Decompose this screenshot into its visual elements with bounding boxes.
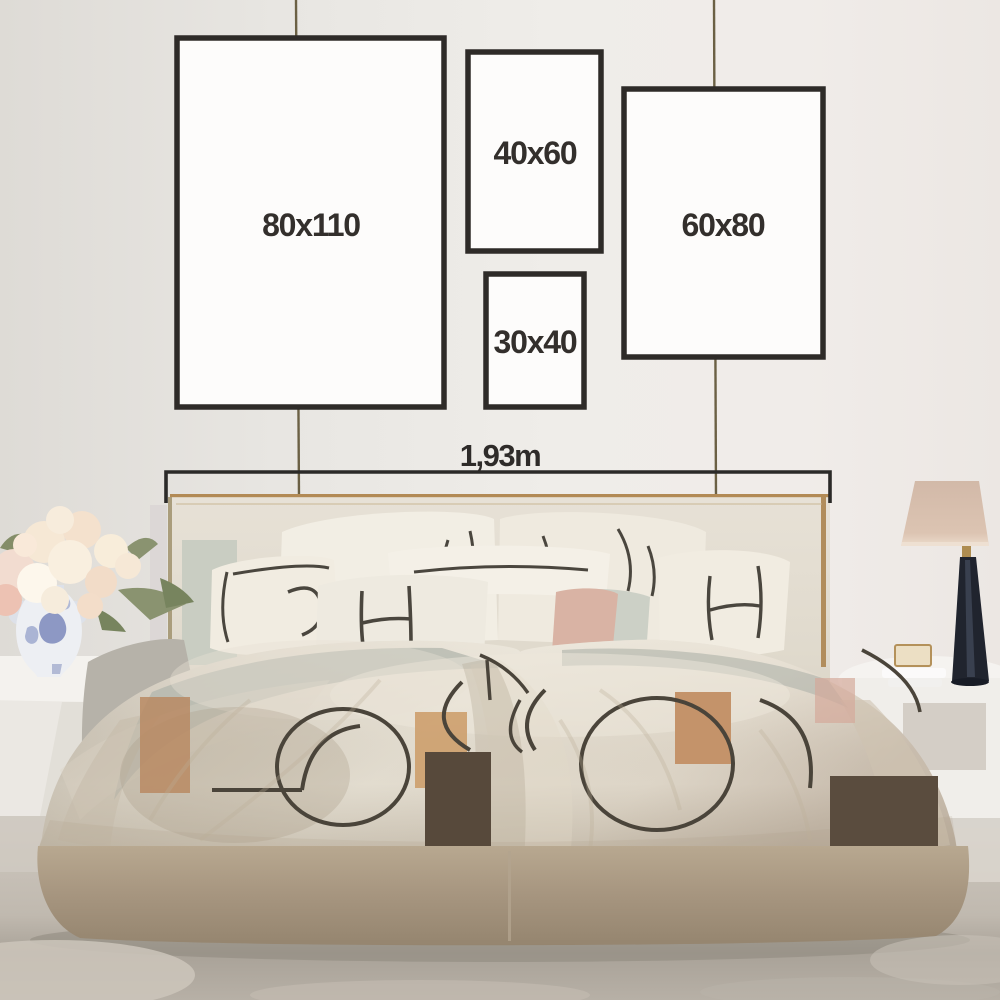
svg-text:80x110: 80x110 (262, 207, 360, 243)
svg-text:60x80: 60x80 (682, 207, 765, 243)
svg-text:30x40: 30x40 (494, 324, 577, 360)
svg-text:40x60: 40x60 (494, 135, 577, 171)
svg-text:1,93m: 1,93m (460, 438, 540, 473)
